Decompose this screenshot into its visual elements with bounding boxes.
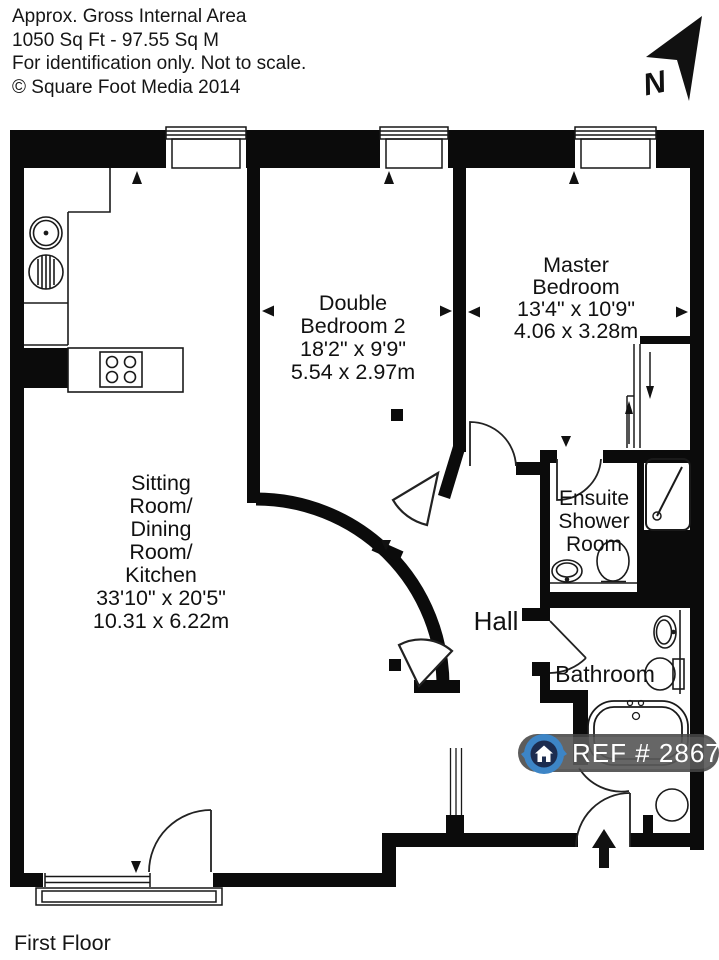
kitchen-hob-icon bbox=[100, 352, 142, 387]
label-master-bedroom: Master Bedroom 13'4" x 10'9" 4.06 x 3.28… bbox=[514, 253, 638, 343]
ref-badge: REF # 2867344 bbox=[518, 734, 719, 772]
svg-text:Double: Double bbox=[319, 291, 387, 315]
svg-text:Shower: Shower bbox=[558, 510, 629, 533]
sitting-dims-metric: 10.31 x 6.22m bbox=[93, 609, 229, 633]
svg-text:Ensuite: Ensuite bbox=[559, 487, 629, 510]
door-swings bbox=[149, 422, 630, 872]
room-labels: Sitting Room/ Dining Room/ Kitchen 33'10… bbox=[93, 253, 655, 687]
floor-title: First Floor bbox=[14, 931, 111, 956]
sitting-dims-imperial: 33'10" x 20'5" bbox=[96, 586, 226, 610]
master-dims-imperial: 13'4" x 10'9" bbox=[517, 297, 635, 321]
label-bedroom2: Double Bedroom 2 18'2" x 9'9" 5.54 x 2.9… bbox=[291, 291, 415, 384]
svg-text:Bedroom 2: Bedroom 2 bbox=[300, 314, 405, 338]
svg-text:Room/: Room/ bbox=[129, 540, 192, 564]
master-wardrobe-lines bbox=[627, 344, 650, 448]
dim-arrow-up bbox=[132, 171, 142, 184]
label-sitting-room: Sitting Room/ Dining Room/ Kitchen 33'10… bbox=[93, 471, 229, 633]
bedroom2-dims-metric: 5.54 x 2.97m bbox=[291, 360, 415, 384]
svg-text:Sitting: Sitting bbox=[131, 471, 191, 495]
ref-number: REF # 2867344 bbox=[572, 738, 719, 769]
dim-arrow-right bbox=[440, 306, 452, 317]
dim-arrow-up bbox=[569, 171, 579, 184]
floorplan-page: Approx. Gross Internal Area 1050 Sq Ft -… bbox=[0, 0, 719, 960]
label-hall: Hall bbox=[474, 606, 519, 636]
bedroom2-dims-imperial: 18'2" x 9'9" bbox=[300, 337, 406, 361]
master-dims-metric: 4.06 x 3.28m bbox=[514, 319, 638, 343]
svg-text:Kitchen: Kitchen bbox=[125, 563, 197, 587]
master-door-arc bbox=[470, 422, 516, 466]
dim-arrow-up bbox=[384, 171, 394, 184]
label-ensuite: Ensuite Shower Room bbox=[558, 487, 629, 556]
dim-arrow-left bbox=[468, 307, 480, 318]
entrance-arrow-icon bbox=[592, 829, 616, 868]
entry-table-icon bbox=[656, 789, 688, 821]
shower-tray-icon bbox=[646, 459, 690, 530]
svg-text:Room/: Room/ bbox=[129, 494, 192, 518]
dim-arrow-left bbox=[262, 306, 274, 317]
north-arrow-icon: N bbox=[640, 16, 702, 103]
bedroom2-door-fan bbox=[393, 473, 438, 525]
north-label: N bbox=[640, 64, 670, 103]
kitchen-wall-block bbox=[24, 348, 68, 388]
up-arrow-icon bbox=[625, 401, 633, 414]
ensuite-basin-icon bbox=[552, 560, 582, 582]
hob-counter-outline bbox=[68, 348, 183, 392]
kitchen-unit-outline bbox=[68, 168, 110, 212]
dim-arrow-down bbox=[561, 436, 571, 447]
bathroom-basin-icon bbox=[654, 616, 676, 648]
house-icon bbox=[521, 731, 567, 777]
svg-text:Bedroom: Bedroom bbox=[532, 275, 619, 299]
radiator-icon bbox=[451, 748, 462, 815]
label-bathroom: Bathroom bbox=[555, 661, 655, 687]
dim-arrow-right bbox=[676, 307, 688, 318]
kitchen-drainer-icon bbox=[29, 255, 63, 289]
balcony-door-arc bbox=[149, 810, 211, 872]
svg-text:Room: Room bbox=[566, 533, 622, 556]
column-marker bbox=[391, 409, 403, 421]
svg-text:Master: Master bbox=[543, 253, 609, 277]
kitchen-sink-icon bbox=[30, 217, 62, 249]
column-marker bbox=[389, 659, 401, 671]
floor-plan: N Sitting Room/ Dining Room/ Kitchen 33'… bbox=[0, 0, 719, 960]
down-arrow-icon bbox=[646, 386, 654, 399]
svg-text:Dining: Dining bbox=[131, 517, 192, 541]
